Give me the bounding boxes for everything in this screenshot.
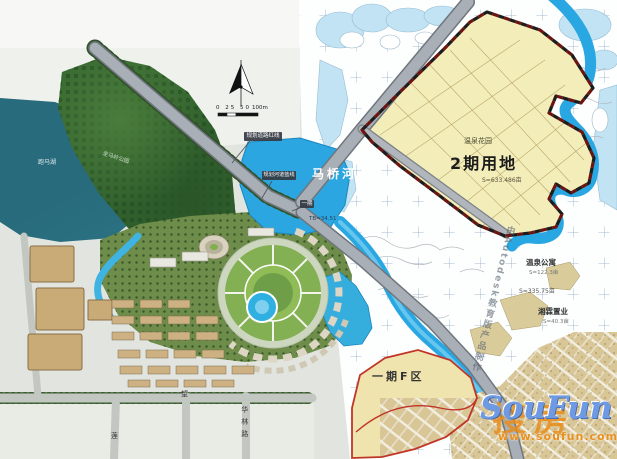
scale-ticks: 0 25 50 (216, 105, 251, 111)
river-blueline-tag: 规划河道蓝线 (262, 171, 296, 180)
elevation-note: TB=34.51 (309, 216, 337, 222)
wenquan-apartments-label: 温泉公寓 (526, 259, 556, 267)
lake-label: 跑马湖 (38, 160, 56, 167)
soufun-watermark: 搜房 SouFun www.soufun.com (478, 390, 617, 454)
compass-icon (229, 60, 253, 106)
phase2-project-label: 温泉花园 (464, 138, 492, 146)
soufun-logo-text: SouFun (480, 390, 612, 426)
wenquan-apartments-area: S=122.3亩 (529, 270, 558, 276)
buildings-large (28, 246, 112, 370)
area-mid-label: S=335.75亩 (519, 289, 555, 296)
scale-bar (218, 113, 258, 116)
road-hualin-label: 华林路 (240, 406, 248, 442)
central-plaza (218, 231, 346, 371)
road-lian-label: 莲 (111, 433, 118, 441)
soufun-url-text: www.soufun.com (498, 430, 617, 443)
xianglin-label: 湘霖置业 (538, 308, 568, 316)
road-redline-tag: 规划道路红线 (244, 132, 282, 141)
phase2-title: 2期用地 (450, 155, 517, 173)
master-plan-map: 马桥河 温泉花园 2期用地 S=633.486亩 一期F区 规划道路红线 规划河… (0, 0, 617, 459)
road-wang-label: 望 (181, 391, 188, 399)
xianglin-area: S=40.3亩 (543, 319, 569, 325)
phase1-tag: 一期 (300, 200, 314, 208)
river-label: 马桥河 (312, 168, 357, 181)
scale-end: 100m (252, 105, 268, 111)
phase1f-title: 一期F区 (372, 371, 425, 383)
phase2-area: S=633.486亩 (482, 178, 522, 185)
